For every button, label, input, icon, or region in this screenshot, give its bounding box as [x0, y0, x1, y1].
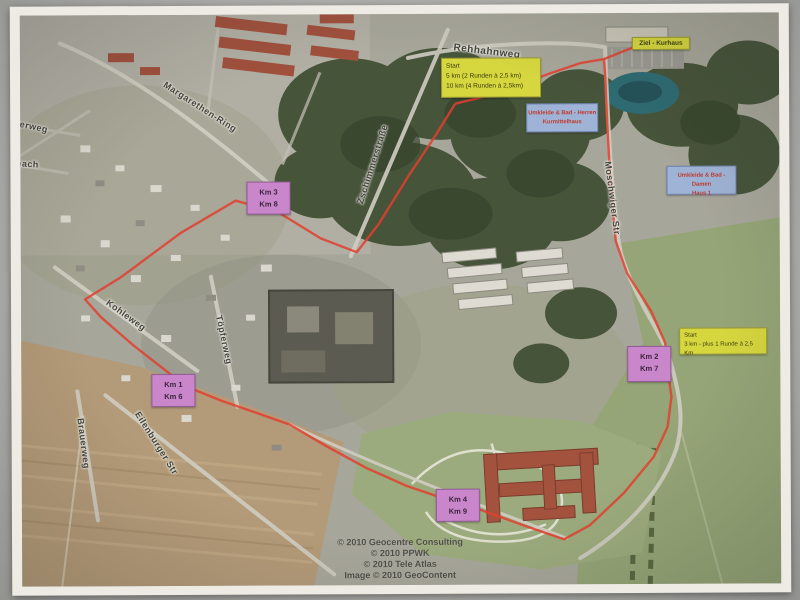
street-label-hbach: hbach — [20, 158, 39, 170]
km-line: Km 7 — [628, 363, 670, 375]
changing-men-line2: Kurmittelhaus — [527, 118, 597, 127]
aerial-map: Rehhahnweg Margarethen-Ring Zschimmerstr… — [20, 12, 781, 586]
credit-line: Image © 2010 GeoContent — [280, 569, 520, 581]
changing-women-line1: Umkleide & Bad - Damen — [667, 172, 735, 190]
start-3k-label: Start 3 km - plus 1 Runde à 2,5 Km — [679, 327, 767, 354]
printed-map-page: Rehhahnweg Margarethen-Ring Zschimmerstr… — [10, 3, 792, 595]
km-line: Km 1 — [152, 379, 194, 391]
changing-rooms-men-label: Umkleide & Bad - Herren Kurmittelhaus — [526, 103, 598, 132]
km-line: Km 3 — [248, 186, 290, 198]
start-title: Start — [446, 61, 536, 71]
km-marker-2-7: Km 2 Km 7 — [627, 346, 671, 382]
map-credits: © 2010 Geocentre Consulting © 2010 PPWK … — [280, 536, 520, 581]
changing-rooms-women-label: Umkleide & Bad - Damen Haus 1 — [666, 166, 736, 195]
aerial-map-graphic — [20, 12, 781, 586]
km-line: Km 9 — [437, 506, 479, 518]
start-5k-10k-label: Start 5 km (2 Runden à 2,5 km) 10 km (4 … — [441, 57, 541, 97]
km-marker-1-6: Km 1 Km 6 — [151, 374, 195, 407]
changing-women-line2: Haus 1 — [668, 190, 736, 199]
changing-men-line1: Umkleide & Bad - Herren — [527, 109, 597, 118]
km-marker-4-9: Km 4 Km 9 — [436, 489, 480, 522]
start3-line: 3 km - plus 1 Runde à 2,5 Km — [684, 340, 762, 358]
start-line-10km: 10 km (4 Runden à 2,5km) — [446, 81, 536, 91]
start3-title: Start — [684, 331, 762, 340]
km-line: Km 8 — [248, 198, 290, 210]
km-marker-3-8: Km 3 Km 8 — [246, 181, 290, 214]
km-line: Km 6 — [152, 391, 194, 403]
finish-label-text: Ziel - Kurhaus — [633, 38, 689, 50]
start-line-5km: 5 km (2 Runden à 2,5 km) — [446, 71, 536, 81]
km-line: Km 4 — [437, 494, 479, 506]
finish-kurhaus-label: Ziel - Kurhaus — [632, 37, 690, 50]
km-line: Km 2 — [628, 351, 670, 363]
